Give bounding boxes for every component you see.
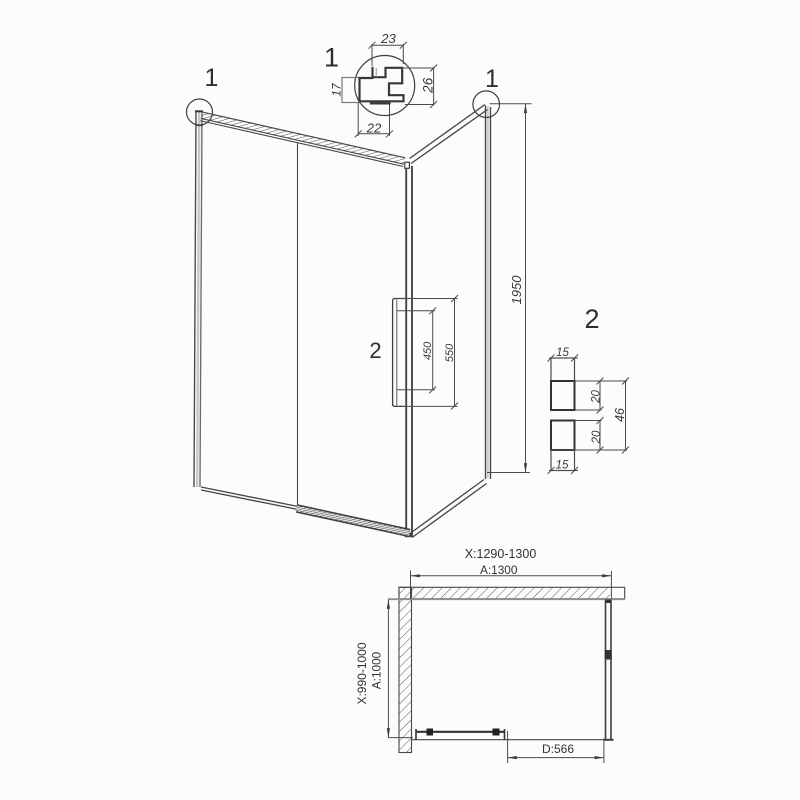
svg-text:450: 450 (422, 341, 434, 360)
svg-text:550: 550 (444, 343, 456, 362)
svg-text:17: 17 (329, 82, 343, 97)
svg-text:2: 2 (584, 304, 599, 334)
svg-text:2: 2 (369, 338, 381, 363)
svg-text:20: 20 (591, 390, 603, 404)
svg-text:1: 1 (205, 64, 219, 92)
svg-text:A:1300: A:1300 (480, 563, 518, 577)
svg-text:26: 26 (420, 77, 435, 94)
svg-text:46: 46 (613, 408, 627, 422)
svg-text:D:566: D:566 (542, 742, 574, 756)
svg-text:1: 1 (485, 65, 499, 93)
svg-text:22: 22 (366, 120, 382, 135)
svg-text:15: 15 (556, 460, 569, 472)
svg-text:X:990-1000: X:990-1000 (355, 642, 369, 704)
svg-text:1950: 1950 (509, 275, 524, 305)
svg-text:A:1000: A:1000 (370, 651, 384, 689)
svg-text:23: 23 (380, 31, 396, 46)
svg-text:15: 15 (556, 347, 569, 359)
svg-text:20: 20 (591, 430, 603, 444)
svg-text:1: 1 (324, 43, 339, 73)
svg-text:X:1290-1300: X:1290-1300 (465, 547, 537, 561)
